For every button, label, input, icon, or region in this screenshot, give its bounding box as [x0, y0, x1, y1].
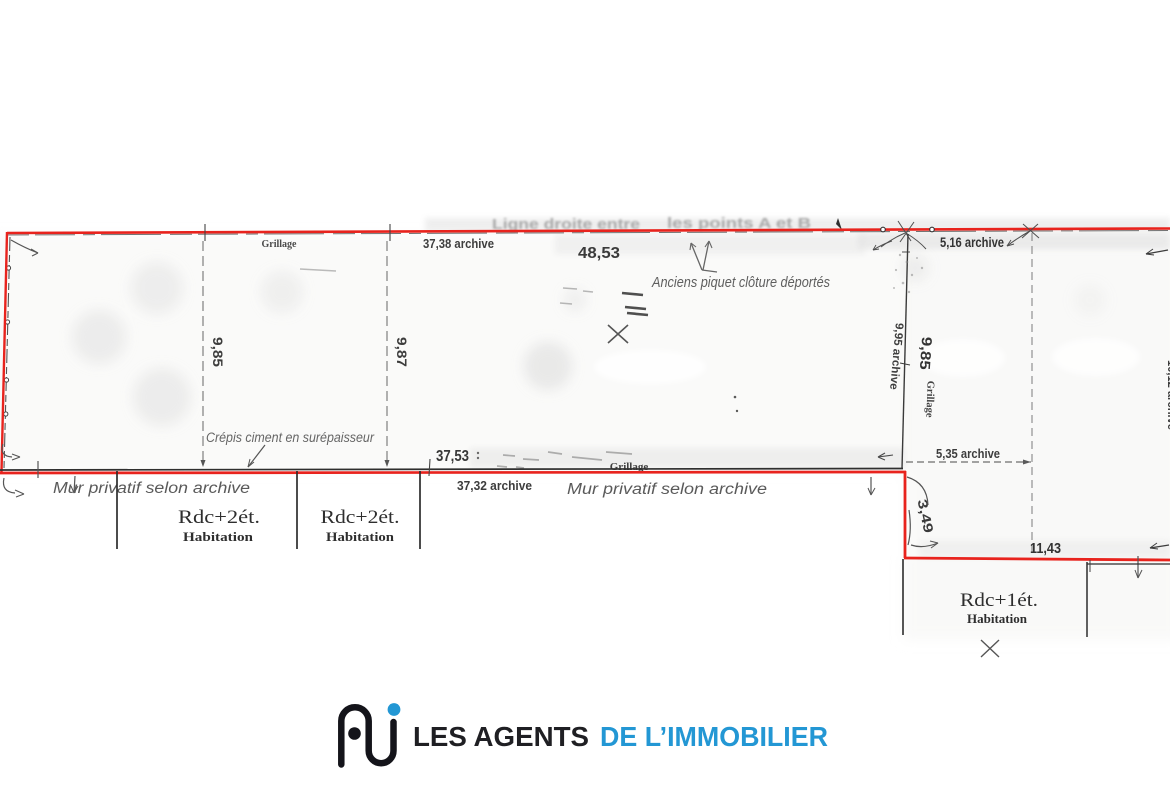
svg-text:Anciens piquet clôture déporté: Anciens piquet clôture déportés: [651, 275, 830, 291]
svg-text:Mur privatif selon archive: Mur privatif selon archive: [53, 480, 250, 497]
svg-text:Grillage: Grillage: [923, 381, 935, 418]
svg-text:10,12 archive: 10,12 archive: [1165, 360, 1170, 430]
svg-text:Rdc+2ét.: Rdc+2ét.: [321, 507, 400, 528]
svg-text:48,53: 48,53: [578, 245, 620, 262]
svg-text:LES AGENTS: LES AGENTS: [413, 721, 589, 752]
svg-text:Habitation: Habitation: [326, 529, 395, 544]
svg-text:Rdc+1ét.: Rdc+1ét.: [960, 590, 1038, 611]
svg-text:9,87: 9,87: [394, 337, 409, 367]
svg-text:37,53: 37,53: [436, 448, 469, 465]
svg-text:9,85: 9,85: [210, 337, 225, 368]
svg-text:11,43: 11,43: [1030, 541, 1061, 557]
svg-text:Rdc+2ét.: Rdc+2ét.: [178, 507, 260, 528]
svg-text:Habitation: Habitation: [967, 611, 1028, 626]
svg-text:DE L’IMMOBILIER: DE L’IMMOBILIER: [600, 721, 828, 752]
svg-text:Grillage: Grillage: [262, 239, 298, 250]
svg-text:37,32 archive: 37,32 archive: [457, 478, 532, 493]
svg-text:5,16 archive: 5,16 archive: [940, 235, 1004, 250]
svg-text:37,38 archive: 37,38 archive: [423, 236, 494, 251]
svg-text:9,85: 9,85: [916, 336, 934, 370]
svg-text:5,35 archive: 5,35 archive: [936, 446, 1000, 461]
svg-text:Crépis ciment en surépaisseur: Crépis ciment en surépaisseur: [206, 430, 374, 445]
svg-text:Mur privatif selon archive: Mur privatif selon archive: [567, 481, 767, 498]
svg-text:Habitation: Habitation: [183, 529, 254, 544]
